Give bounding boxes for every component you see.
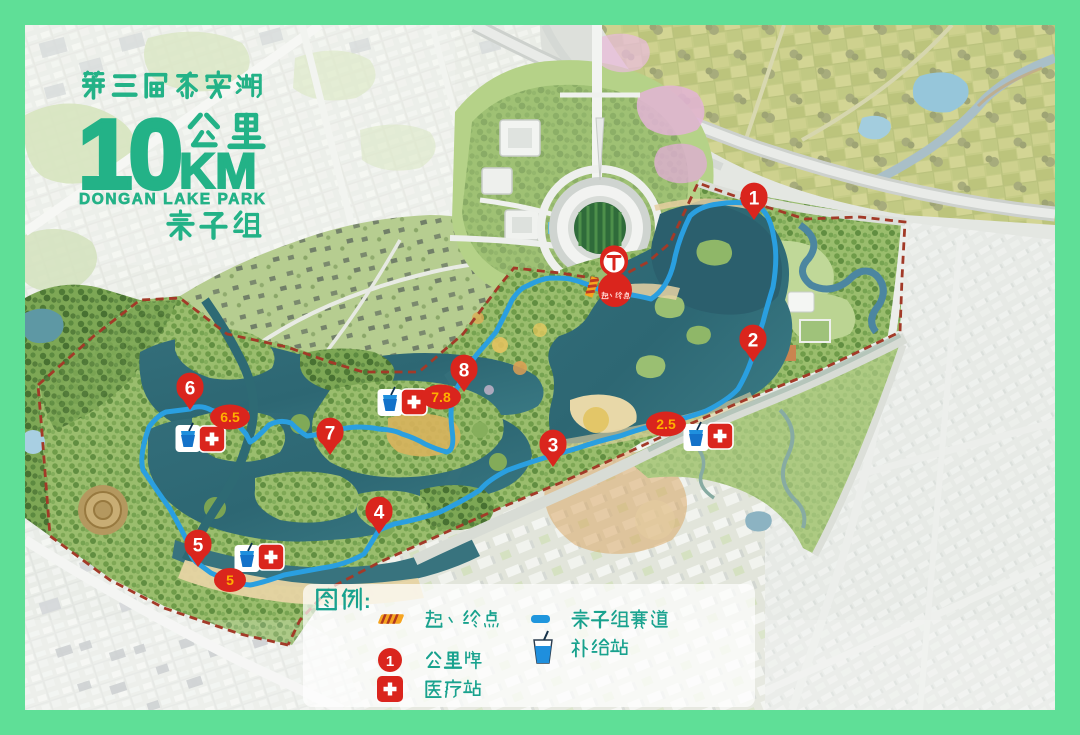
svg-text:8: 8 <box>459 361 470 382</box>
svg-text:3: 3 <box>548 436 559 457</box>
svg-text:DONGAN LAKE PARK: DONGAN LAKE PARK <box>79 191 266 208</box>
svg-text:5: 5 <box>226 572 234 588</box>
svg-text:6.5: 6.5 <box>220 409 240 425</box>
svg-text:7: 7 <box>325 424 336 445</box>
svg-text:2: 2 <box>748 331 759 352</box>
svg-text:6: 6 <box>185 379 196 400</box>
svg-text::: : <box>364 591 371 613</box>
svg-text:1: 1 <box>749 189 760 210</box>
svg-text:1: 1 <box>386 653 394 670</box>
svg-text:5: 5 <box>193 536 204 557</box>
svg-text:7.8: 7.8 <box>431 389 451 405</box>
svg-text:4: 4 <box>374 503 385 524</box>
svg-text:2.5: 2.5 <box>656 416 676 432</box>
